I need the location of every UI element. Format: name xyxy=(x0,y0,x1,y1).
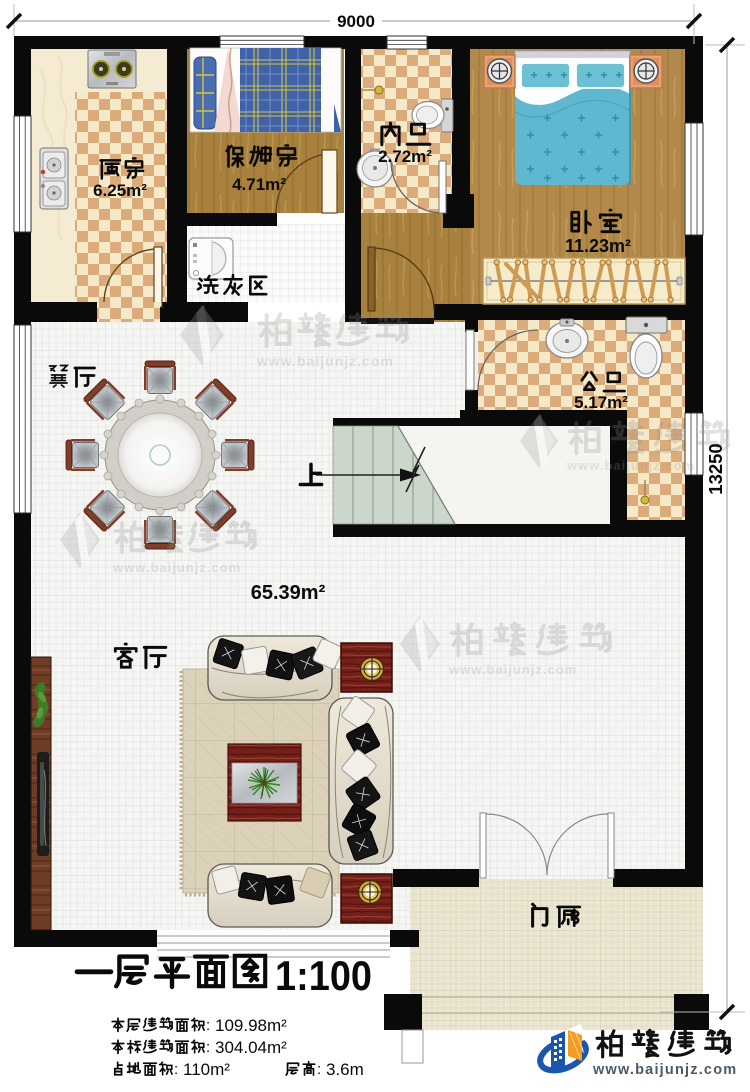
svg-text::: : xyxy=(317,1061,321,1078)
svg-text:109.98m²: 109.98m² xyxy=(215,1016,287,1035)
svg-text:110m²: 110m² xyxy=(183,1060,230,1079)
svg-text:5.17m²: 5.17m² xyxy=(574,393,628,412)
svg-text:3.6m: 3.6m xyxy=(326,1060,364,1079)
svg-text:www.baijunjz.com: www.baijunjz.com xyxy=(112,560,241,575)
svg-text:9000: 9000 xyxy=(337,12,375,31)
svg-text::: : xyxy=(174,1061,178,1078)
svg-text:2.72m²: 2.72m² xyxy=(378,147,432,166)
svg-text::: : xyxy=(206,1017,210,1034)
svg-text:65.39m²: 65.39m² xyxy=(251,582,326,604)
svg-text:www.baijunjz.com: www.baijunjz.com xyxy=(256,353,394,369)
svg-text:11.23m²: 11.23m² xyxy=(565,236,631,256)
svg-text:304.04m²: 304.04m² xyxy=(215,1038,287,1057)
svg-text:1:100: 1:100 xyxy=(275,952,372,999)
svg-text:6.25m²: 6.25m² xyxy=(93,181,147,200)
svg-text:www.baijunjz.com: www.baijunjz.com xyxy=(448,662,577,677)
svg-text::: : xyxy=(206,1039,210,1056)
svg-text:www.baijunjz.com: www.baijunjz.com xyxy=(592,1062,737,1078)
svg-text:13250: 13250 xyxy=(705,443,726,494)
svg-text:www.baijunjz.com: www.baijunjz.com xyxy=(566,458,695,473)
svg-text:4.71m²: 4.71m² xyxy=(232,175,286,194)
